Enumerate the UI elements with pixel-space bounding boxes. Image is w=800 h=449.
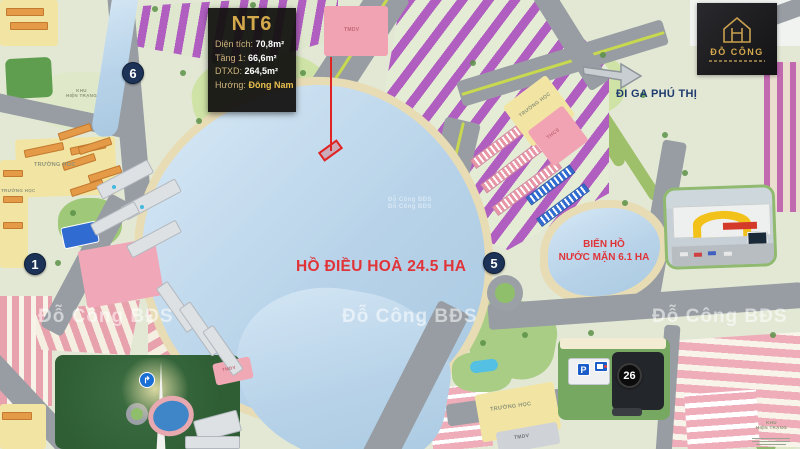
watermark-small: Đỗ Công BĐSĐỗ Công BĐS (388, 197, 432, 211)
mall-inset (663, 184, 778, 270)
info-sign (594, 361, 608, 372)
label-existing-line2: HIỆN TRẠNG (756, 425, 787, 430)
watermark: Đỗ Công BĐS (652, 306, 788, 328)
parking-sign: P (577, 363, 590, 376)
caption-line (752, 438, 790, 439)
brand-logo: ĐỖ CÔNG (697, 3, 777, 75)
marker-6: 6 (122, 62, 144, 84)
sign-dot (604, 365, 607, 368)
venue-building (185, 436, 240, 449)
building (3, 222, 23, 229)
leader-line (330, 57, 332, 151)
direction-arrow-icon (583, 58, 645, 92)
marker-26: 26 (617, 363, 642, 388)
label-existing-line2: HIỆN TRẠNG (66, 93, 97, 98)
car (680, 252, 688, 256)
housing-zone-bottomright2 (684, 390, 760, 449)
marker-1: 1 (24, 253, 46, 275)
car (694, 253, 702, 257)
tree-icon (770, 332, 776, 338)
info-value: 264,5m² (245, 66, 279, 76)
pool (140, 205, 144, 209)
sports-field (5, 57, 53, 99)
tree-icon (300, 70, 306, 76)
info-label: Tầng 1: (215, 53, 246, 63)
tree-icon (180, 70, 186, 76)
label-school: TRƯỜNG HỌC (1, 188, 36, 193)
school-block (0, 404, 46, 449)
info-card-title: NT6 (215, 13, 289, 35)
tree-icon (196, 118, 202, 124)
tree-icon (152, 6, 158, 12)
building (10, 22, 48, 30)
info-value: 70,8m² (256, 39, 285, 49)
road-sign-roundabout: ↱ (139, 372, 155, 388)
brand-name: ĐỖ CÔNG (710, 47, 764, 57)
watermark-small-line: Đỗ Công BĐS (388, 197, 432, 204)
building-strip (560, 338, 666, 349)
watermark: Đỗ Công BĐS (342, 306, 478, 328)
salt-lake-label-line1: BIỂN HỒ (548, 238, 660, 251)
tree-icon (682, 170, 688, 176)
direction-sign-label: ĐI GA PHÚ THỊ (616, 88, 697, 100)
building (3, 170, 23, 177)
info-card-row: Hướng: Đông Nam (215, 79, 289, 93)
marker-5: 5 (483, 252, 505, 274)
pool (112, 185, 116, 189)
label-tmdv: TMDV (344, 27, 359, 33)
info-value: Đông Nam (248, 80, 293, 90)
caption-line (752, 441, 790, 442)
info-card-row: Diện tích: 70,8m² (215, 38, 289, 52)
tree-icon (662, 132, 668, 138)
info-card-row: Tầng 1: 66,6m² (215, 52, 289, 66)
tree-icon (470, 60, 476, 66)
info-label: Diện tích: (215, 39, 253, 49)
tree-icon (522, 332, 528, 338)
dark-building-strip (612, 408, 642, 416)
mall-red-sign (723, 222, 757, 230)
salt-lake-label-line2: NƯỚC MẶN 6.1 HA (548, 251, 660, 264)
house-monogram-icon (721, 16, 753, 44)
building (2, 412, 32, 420)
tree-icon (70, 210, 76, 216)
sign-pictogram (597, 364, 603, 369)
car (708, 251, 716, 255)
watermark: Đỗ Công BĐS (38, 306, 174, 328)
info-card: NT6 Diện tích: 70,8m² Tầng 1: 66,6m² DTX… (208, 8, 296, 112)
roundabout-center (131, 408, 143, 420)
tree-icon (588, 330, 594, 336)
building (6, 8, 44, 16)
info-card-row: DTXD: 264,5m² (215, 65, 289, 79)
info-label: DTXD: (215, 66, 242, 76)
tree-icon (480, 340, 486, 346)
masterplan-map: P ↱ TRƯỜNG HỌC TRƯỜNG HỌC TRƯỜNG HỌC TRƯ… (0, 0, 800, 449)
watermark-small-line: Đỗ Công BĐS (388, 204, 432, 211)
label-existing-area: KHUHIỆN TRẠNG (66, 88, 97, 98)
label-existing-area: KHUHIỆN TRẠNG (756, 420, 787, 430)
car (724, 252, 732, 256)
tree-icon (55, 260, 61, 266)
main-lake-label: HỒ ĐIỀU HOÀ 24.5 HA (296, 258, 466, 276)
label-school: TRƯỜNG HỌC (34, 162, 76, 168)
building (3, 196, 23, 203)
salt-lake-label: BIỂN HỒNƯỚC MẶN 6.1 HA (548, 238, 660, 264)
caption-line (756, 444, 786, 445)
info-value: 66,6m² (248, 53, 277, 63)
info-label: Hướng: (215, 80, 246, 90)
brand-tagline-line (709, 60, 765, 62)
tree-icon (622, 200, 628, 206)
roundabout-center (495, 283, 515, 303)
